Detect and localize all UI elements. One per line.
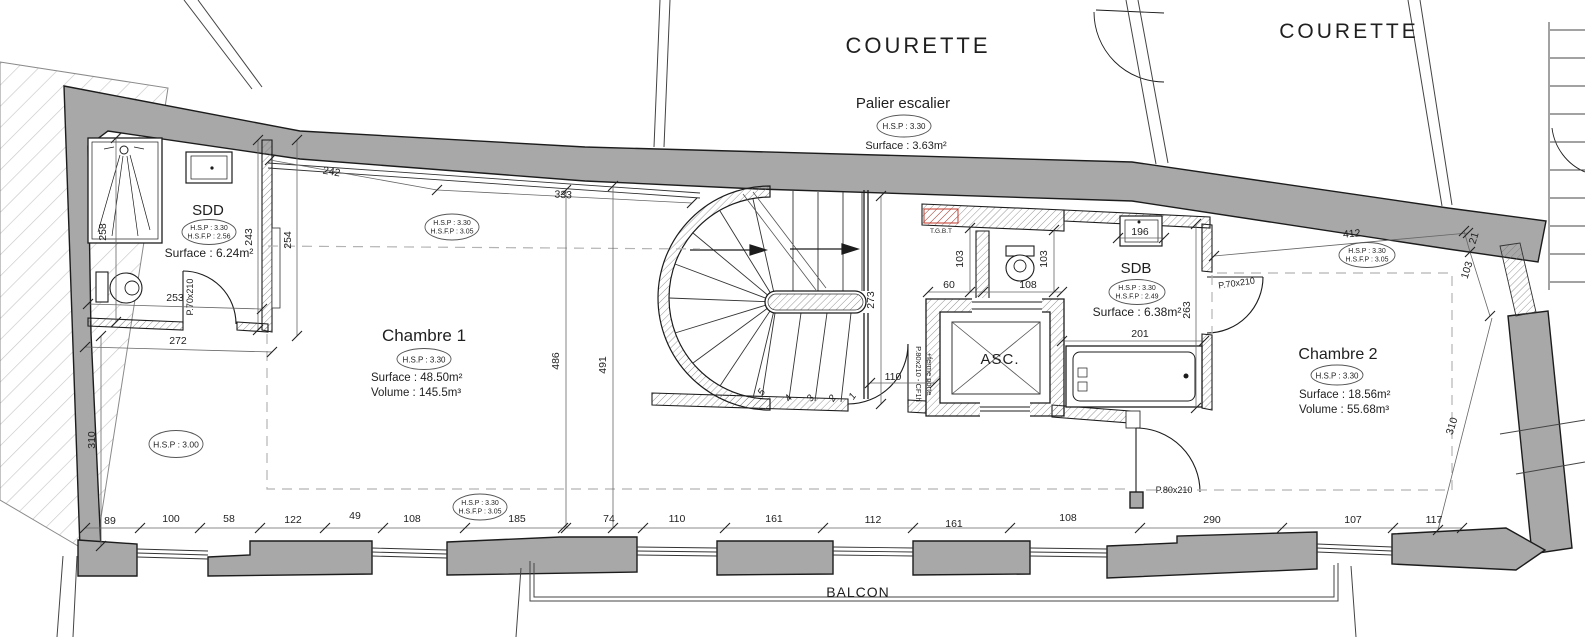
label-chambre2-name: Chambre 2 bbox=[1298, 346, 1377, 363]
sdb-east-wall-upper bbox=[1202, 224, 1212, 272]
label-chambre2-surface: Surface : 18.56m² bbox=[1299, 389, 1391, 401]
dimension-label: 310 bbox=[86, 431, 98, 449]
label-hsp300: H.S.P : 3.00 bbox=[153, 440, 199, 450]
south-pier-c bbox=[447, 537, 637, 575]
wc-toilet bbox=[1006, 246, 1034, 281]
label-sdd-name: SDD bbox=[192, 202, 224, 219]
bubble-sdd bbox=[182, 220, 236, 245]
sdd-toilet bbox=[96, 272, 142, 303]
dimension-label: 103 bbox=[1038, 250, 1050, 268]
north-facade-and-west-wall bbox=[64, 86, 1546, 549]
dimension-label: 112 bbox=[865, 514, 882, 526]
floor-plan-page: COURETTE COURETTE Palier escalier H.S.P … bbox=[0, 0, 1585, 637]
dimension-label: T.G.B.T bbox=[930, 228, 952, 235]
dimension-label: 100 bbox=[162, 513, 180, 525]
label-chambre1-surface: Surface : 48.50m² bbox=[371, 372, 463, 384]
dimension-label: 486 bbox=[550, 352, 562, 370]
window bbox=[372, 548, 447, 558]
dimension-label: 273 bbox=[865, 291, 877, 309]
dimension-label: 108 bbox=[1019, 279, 1037, 291]
label-facade-sud-hsp: H.S.P : 3.30 bbox=[461, 500, 499, 507]
label-facade-nord-hsfp: H.S.F.P : 3.05 bbox=[430, 229, 473, 236]
label-chambre2-hsp: H.S.P : 3.30 bbox=[1316, 372, 1360, 381]
dimension-label: 103 bbox=[1459, 260, 1476, 280]
courette-door bbox=[1094, 10, 1164, 82]
label-sdd-hsfp: H.S.F.P : 2.56 bbox=[187, 234, 230, 241]
dimension-label: P.70x210 bbox=[185, 279, 195, 316]
bathtub bbox=[1066, 346, 1202, 407]
courette-door-right bbox=[1552, 128, 1585, 172]
dimension-label: P.80x210 - CF1h bbox=[914, 346, 923, 402]
wc-divider-wall bbox=[976, 231, 989, 299]
label-sdd-surface: Surface : 6.24m² bbox=[165, 246, 254, 260]
sdb-east-wall-lower bbox=[1202, 334, 1212, 410]
sdd-sink bbox=[186, 152, 232, 183]
south-pier-a bbox=[78, 540, 137, 576]
label-chambre2-nord-hsp: H.S.P : 3.30 bbox=[1348, 248, 1386, 255]
balcony-door bbox=[1136, 428, 1200, 492]
label-sdb-name: SDB bbox=[1121, 260, 1152, 277]
exterior-walls bbox=[64, 86, 1572, 578]
door-jamb bbox=[1126, 411, 1140, 428]
label-palier-surface: Surface : 3.63m² bbox=[865, 140, 947, 152]
window bbox=[137, 549, 208, 559]
hall-south-wall-post bbox=[908, 400, 926, 413]
dimension-label: 117 bbox=[1426, 514, 1443, 526]
dimension-label: 412 bbox=[1342, 227, 1361, 240]
window bbox=[1030, 548, 1107, 557]
label-palier-name: Palier escalier bbox=[856, 95, 950, 112]
dimension-label: 310 bbox=[1444, 416, 1461, 436]
dimension-label: 108 bbox=[403, 513, 421, 525]
dimension-label: 103 bbox=[954, 250, 966, 268]
label-chambre2-nord-hsfp: H.S.F.P : 3.05 bbox=[1345, 257, 1388, 264]
dimension-label: +ferme porte bbox=[925, 353, 934, 396]
label-sdd-hsp: H.S.P : 3.30 bbox=[190, 225, 228, 232]
label-courette-right: COURETTE bbox=[1279, 20, 1419, 43]
tgbt-box bbox=[924, 209, 958, 223]
dimension-label: 242 bbox=[322, 165, 341, 180]
bubble-facade-sud bbox=[453, 494, 507, 520]
shower-head bbox=[120, 146, 128, 154]
dimension-label: 60 bbox=[943, 279, 955, 291]
east-wall bbox=[1508, 311, 1572, 554]
dimension-label: 201 bbox=[1131, 328, 1149, 340]
label-chambre1-hsp: H.S.P : 3.30 bbox=[403, 356, 447, 365]
dimension-label: 49 bbox=[349, 510, 361, 522]
dimension-label: P.70x210 bbox=[1218, 276, 1256, 291]
bubble-sdb bbox=[1109, 280, 1165, 305]
dimension-label: 333 bbox=[554, 189, 572, 202]
label-asc: ASC. bbox=[980, 351, 1019, 368]
dimension-label: 89 bbox=[104, 515, 116, 527]
dimension-label: 290 bbox=[1203, 514, 1221, 526]
label-courette-left: COURETTE bbox=[846, 33, 991, 58]
dimension-label: 185 bbox=[508, 513, 526, 525]
bubble-chambre2-nord bbox=[1339, 243, 1395, 268]
dimension-label: 1 bbox=[847, 391, 859, 402]
floor-plan-drawing: COURETTE COURETTE Palier escalier H.S.P … bbox=[0, 0, 1585, 637]
label-facade-nord-hsp: H.S.P : 3.30 bbox=[433, 220, 471, 227]
south-pier-e bbox=[913, 541, 1030, 575]
label-facade-sud-hsfp: H.S.F.P : 3.05 bbox=[458, 509, 501, 516]
ceiling-dashed-lines bbox=[267, 246, 1452, 490]
stair-direction-arrows bbox=[690, 244, 858, 255]
sdd-east-wall bbox=[262, 140, 272, 332]
dimension-label: 272 bbox=[169, 335, 187, 347]
dimension-label: 196 bbox=[1131, 226, 1149, 238]
dimension-label: 122 bbox=[284, 514, 302, 526]
label-palier-hsp: H.S.P : 3.30 bbox=[883, 122, 927, 131]
south-pier-b bbox=[208, 541, 372, 576]
dimension-label: 253 bbox=[166, 292, 184, 304]
spiral-stair bbox=[658, 186, 868, 410]
dimension-label: 243 bbox=[243, 228, 255, 246]
label-chambre1-name: Chambre 1 bbox=[382, 326, 466, 345]
south-pier-g bbox=[1392, 528, 1545, 570]
dimension-label: 161 bbox=[945, 518, 963, 530]
dimension-label: 263 bbox=[1181, 301, 1193, 319]
window bbox=[637, 547, 717, 556]
label-balcon: BALCON bbox=[826, 584, 890, 600]
window bbox=[1317, 544, 1392, 555]
dimension-label: 107 bbox=[1344, 514, 1362, 526]
dimension-label: 491 bbox=[597, 356, 609, 374]
sdd-south-wall-right bbox=[237, 322, 268, 332]
dimension-label: 74 bbox=[603, 513, 615, 525]
dimension-label: P.80x210 bbox=[1156, 485, 1193, 495]
door-post bbox=[1130, 492, 1143, 508]
south-pier-d bbox=[717, 541, 833, 575]
dimension-label: 108 bbox=[1059, 512, 1077, 524]
sdd-pilaster bbox=[272, 228, 280, 308]
dimension-label: 110 bbox=[669, 513, 686, 525]
dimension-label: 110 bbox=[885, 371, 902, 383]
dimension-label: 161 bbox=[765, 513, 783, 525]
dimension-label: 254 bbox=[282, 231, 294, 249]
dimension-label: 58 bbox=[223, 513, 235, 525]
label-sdb-hsfp: H.S.F.P : 2.49 bbox=[1115, 294, 1158, 301]
label-chambre1-volume: Volume : 145.5m³ bbox=[371, 387, 461, 399]
exterior-steps bbox=[1549, 22, 1585, 290]
bathtub-drain bbox=[1184, 374, 1189, 379]
window bbox=[833, 547, 913, 556]
stair-cut-lines bbox=[743, 192, 826, 290]
bubble-facade-nord bbox=[425, 214, 479, 240]
dimension-label: 258 bbox=[97, 223, 109, 241]
south-pier-f bbox=[1107, 532, 1317, 578]
label-sdb-surface: Surface : 6.38m² bbox=[1093, 305, 1182, 319]
label-chambre2-volume: Volume : 55.68m³ bbox=[1299, 404, 1389, 416]
label-sdb-hsp: H.S.P : 3.30 bbox=[1118, 285, 1156, 292]
